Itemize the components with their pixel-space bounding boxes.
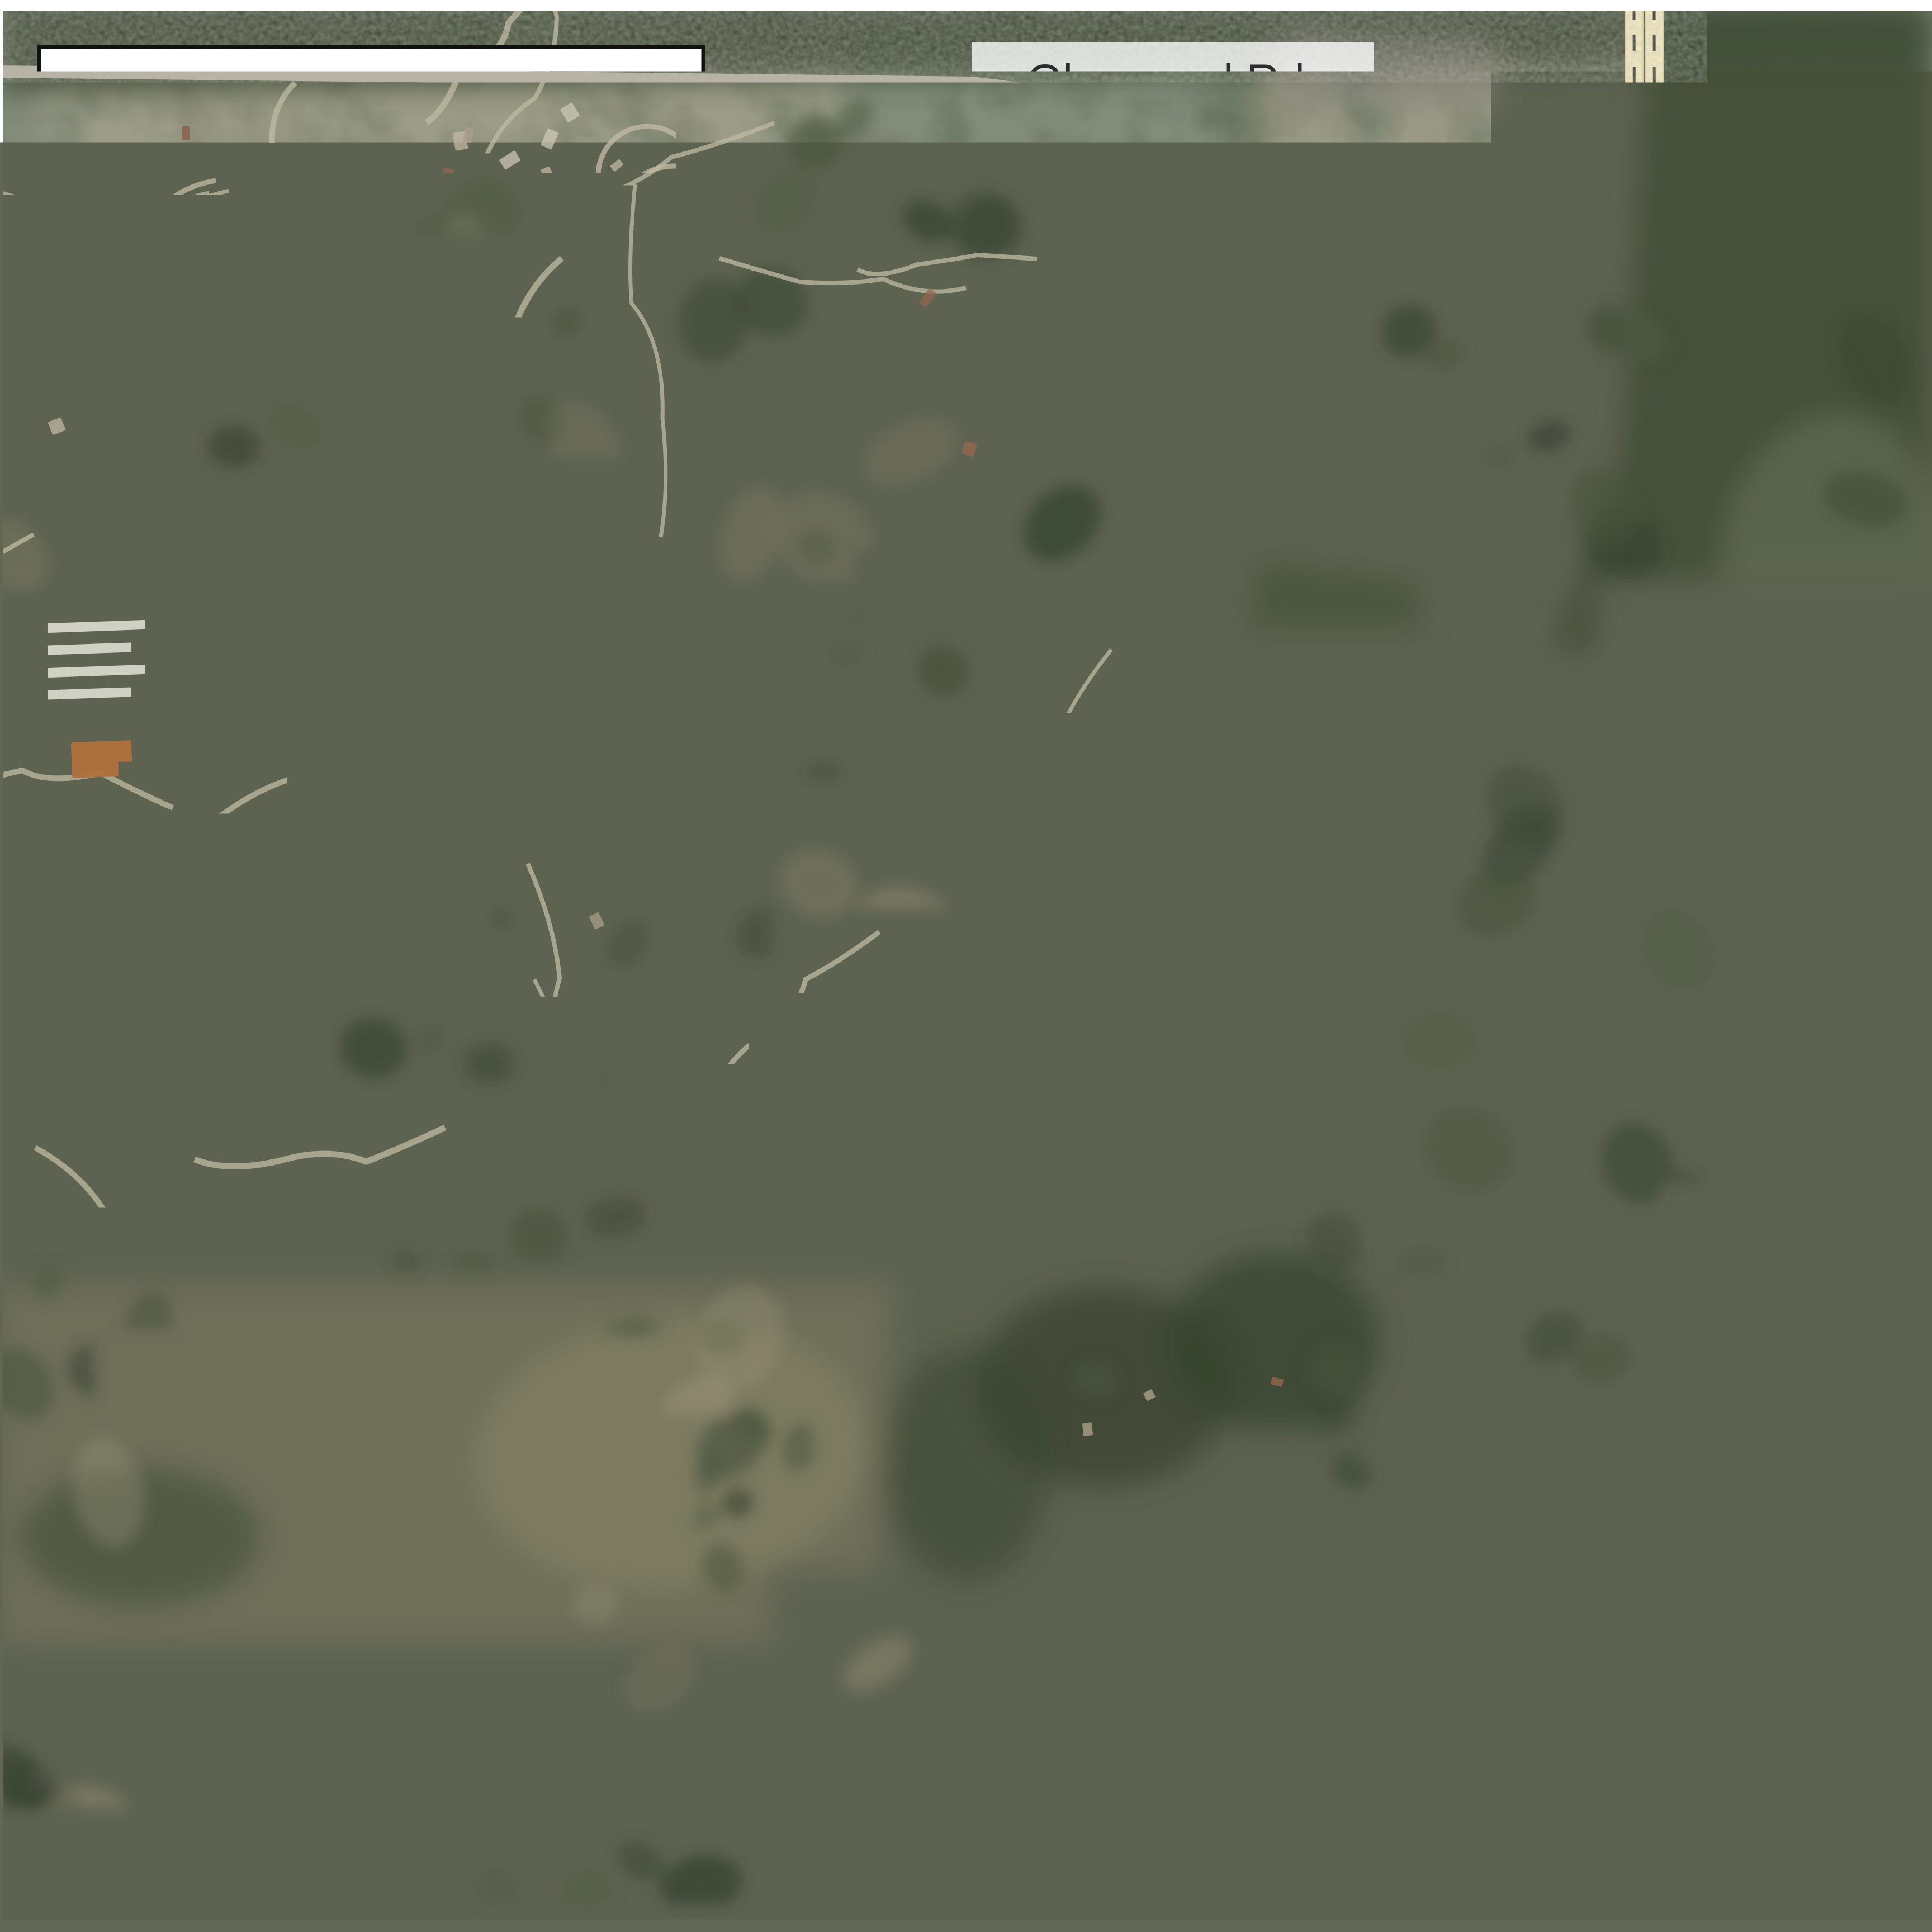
svg-text:285: 285	[1035, 1758, 1086, 1790]
svg-text:Cross Snapfinger Road: Cross Snapfinger Road	[335, 732, 783, 780]
svg-text:Cobbs: Cobbs	[841, 1004, 970, 1054]
svg-text:285: 285	[1538, 809, 1579, 838]
svg-text:Creek: Creek	[846, 1060, 965, 1110]
svg-text:20: 20	[840, 1822, 877, 1860]
svg-text:Upsizing Project: Upsizing Project	[170, 245, 573, 304]
svg-text:Creek Crossing 1: Creek Crossing 1	[1253, 1320, 1594, 1370]
svg-text:Glenwood Rd.: Glenwood Rd.	[1027, 55, 1318, 106]
svg-text:Creek Crossing 2: Creek Crossing 2	[308, 1268, 649, 1318]
svg-text:Cobb Fowler North Sewer: Cobb Fowler North Sewer	[56, 179, 686, 238]
svg-text:20: 20	[135, 1723, 173, 1761]
